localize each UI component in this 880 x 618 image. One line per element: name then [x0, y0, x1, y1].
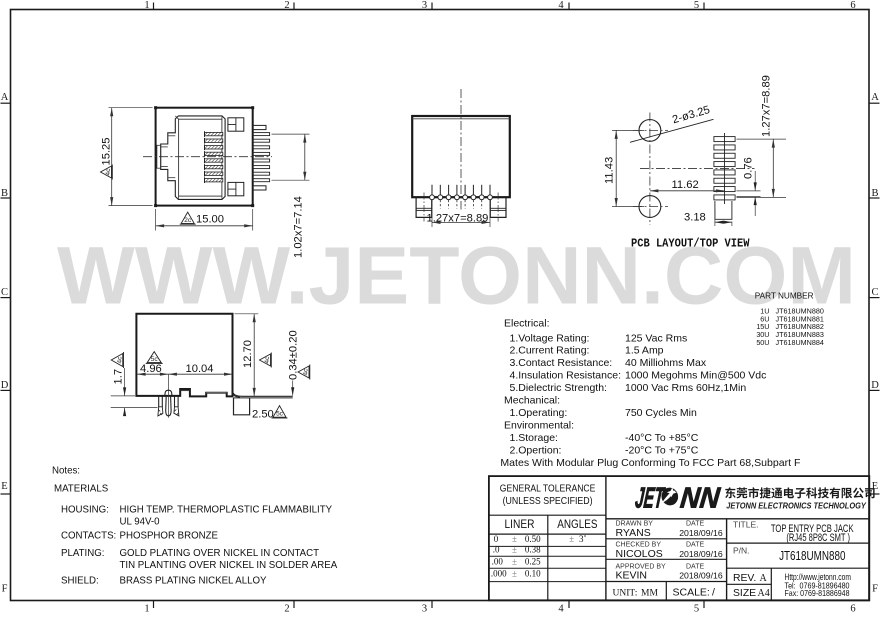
svg-text:SIZE: SIZE	[733, 588, 756, 599]
svg-text:.00: .00	[492, 557, 504, 567]
svg-text:12.70: 12.70	[242, 340, 254, 368]
svg-text:750 Cycles Min: 750 Cycles Min	[625, 407, 697, 419]
svg-text:1000 Megohms Min@500 Vdc: 1000 Megohms Min@500 Vdc	[625, 370, 766, 382]
svg-text:ANGLES: ANGLES	[557, 518, 598, 531]
svg-text:1.5 Amp: 1.5 Amp	[625, 345, 664, 357]
svg-text:0.38: 0.38	[525, 544, 541, 554]
svg-text:HOUSING:: HOUSING:	[61, 505, 109, 516]
svg-text:2018/09/16: 2018/09/16	[679, 549, 723, 559]
svg-text:1.Voltage Rating:: 1.Voltage Rating:	[510, 333, 590, 345]
svg-text:C: C	[871, 287, 878, 298]
svg-text:A4: A4	[758, 588, 770, 599]
svg-text:C: C	[1, 287, 8, 298]
svg-text:4: 4	[558, 0, 564, 11]
svg-text:Mates With Modular Plug Confor: Mates With Modular Plug Conforming To FC…	[500, 457, 800, 469]
svg-text:PCB LAYOUT/TOP VIEW: PCB LAYOUT/TOP VIEW	[631, 237, 750, 250]
svg-text:CONTACTS:: CONTACTS:	[61, 531, 116, 542]
svg-text:PART NUMBER: PART NUMBER	[755, 292, 814, 301]
svg-text:0.34±0.20: 0.34±0.20	[287, 330, 299, 380]
svg-text:E: E	[872, 481, 878, 492]
svg-text:6: 6	[850, 604, 855, 614]
svg-text:DATE: DATE	[686, 542, 704, 549]
svg-text:3˚: 3˚	[579, 534, 587, 544]
svg-text:1.7: 1.7	[113, 369, 125, 385]
svg-text:0.76: 0.76	[743, 157, 755, 179]
svg-text:KEVIN: KEVIN	[616, 570, 648, 582]
svg-text:6: 6	[850, 0, 855, 11]
svg-text:10.04: 10.04	[186, 363, 214, 375]
svg-text:SHIELD:: SHIELD:	[61, 576, 99, 587]
svg-text:1: 1	[144, 0, 149, 11]
svg-text:NICOLOS: NICOLOS	[616, 548, 663, 560]
svg-text:TITLE.: TITLE.	[733, 520, 759, 530]
svg-text:5.Dielectric Strength:: 5.Dielectric Strength:	[510, 382, 607, 394]
svg-text:D: D	[1, 380, 9, 391]
svg-text:DATE: DATE	[686, 564, 704, 571]
svg-text:F: F	[2, 584, 8, 595]
svg-text:Mechanical:: Mechanical:	[504, 395, 560, 407]
svg-text:1.Operating:: 1.Operating:	[510, 407, 568, 419]
svg-text:40 Milliohms Max: 40 Milliohms Max	[625, 357, 707, 369]
svg-text:1: 1	[144, 604, 149, 614]
svg-text:B: B	[871, 188, 878, 199]
svg-text:1.27x7=8.89: 1.27x7=8.89	[427, 213, 489, 225]
svg-text:TIN PLANTING OVER NICKEL IN SO: TIN PLANTING OVER NICKEL IN SOLDER AREA	[120, 560, 338, 571]
svg-text:2.Opertion:: 2.Opertion:	[510, 445, 562, 457]
svg-text:5c: 5c	[151, 356, 159, 363]
svg-text:±: ±	[512, 569, 517, 579]
svg-text:GENERAL TOLERANCE: GENERAL TOLERANCE	[500, 483, 596, 494]
svg-text:3.Contact Resistance:: 3.Contact Resistance:	[510, 357, 613, 369]
svg-text:UL 94V-0: UL 94V-0	[120, 517, 161, 528]
svg-text:GOLD PLATING OVER NICKEL IN CO: GOLD PLATING OVER NICKEL IN CONTACT	[120, 548, 320, 559]
svg-text:1000 Vac Rms 60Hz,1Min: 1000 Vac Rms 60Hz,1Min	[625, 382, 746, 394]
svg-text:F: F	[872, 584, 878, 595]
svg-text:2: 2	[284, 0, 289, 11]
svg-text:-20°C To +75°C: -20°C To +75°C	[625, 445, 699, 457]
svg-text:0.10: 0.10	[525, 569, 541, 579]
svg-text:SCALE:: SCALE:	[673, 587, 710, 599]
svg-text:2018/09/16: 2018/09/16	[679, 571, 723, 581]
svg-text:±: ±	[512, 544, 517, 554]
svg-text:MM: MM	[641, 589, 658, 599]
svg-text:UNIT:: UNIT:	[613, 589, 638, 599]
svg-text:HIGH TEMP. THERMOPLASTIC FLAMM: HIGH TEMP. THERMOPLASTIC FLAMMABILITY	[120, 505, 333, 516]
svg-text:±: ±	[512, 557, 517, 567]
svg-text:4.96: 4.96	[140, 363, 162, 375]
svg-text:A: A	[760, 573, 768, 584]
svg-text:P/N.: P/N.	[733, 545, 750, 555]
svg-text:PLATING:: PLATING:	[61, 548, 104, 559]
svg-text:11.43: 11.43	[604, 157, 616, 184]
svg-text:/: /	[712, 587, 715, 599]
svg-text:A: A	[1, 92, 9, 103]
svg-text:0: 0	[494, 534, 499, 544]
svg-text:15.25: 15.25	[101, 138, 113, 166]
svg-text:D: D	[871, 380, 879, 391]
svg-text:4.Insulation Resistance:: 4.Insulation Resistance:	[510, 370, 621, 382]
svg-text:.000: .000	[491, 569, 507, 579]
svg-text:3: 3	[422, 604, 427, 614]
svg-text:11.62: 11.62	[672, 179, 699, 191]
svg-text:5c: 5c	[276, 411, 284, 418]
svg-text:1.27x7=8.89: 1.27x7=8.89	[761, 75, 773, 137]
svg-text:4c: 4c	[105, 168, 112, 176]
svg-text:2: 2	[284, 604, 289, 614]
svg-text:3.18: 3.18	[684, 212, 706, 224]
svg-text:0.50: 0.50	[525, 534, 541, 544]
svg-text:1.Storage:: 1.Storage:	[510, 432, 558, 444]
svg-text:-40°C To +85°C: -40°C To +85°C	[625, 432, 699, 444]
svg-text:125 Vac Rms: 125 Vac Rms	[625, 333, 687, 345]
svg-text:4c: 4c	[264, 356, 271, 364]
svg-text:±: ±	[512, 534, 517, 544]
svg-text:Electrical:: Electrical:	[504, 318, 550, 330]
svg-text:.0: .0	[493, 544, 500, 554]
svg-text:Notes:: Notes:	[52, 465, 80, 476]
svg-text:2.Current Rating:: 2.Current Rating:	[510, 345, 590, 357]
svg-text:DATE: DATE	[686, 521, 704, 528]
svg-text:4: 4	[558, 604, 564, 614]
svg-text:50U: 50U	[756, 338, 769, 347]
svg-text:1.02x7=7.14: 1.02x7=7.14	[292, 196, 304, 258]
svg-text:(UNLESS SPECIFIED): (UNLESS SPECIFIED)	[503, 496, 593, 507]
svg-text:JT618UMN880: JT618UMN880	[779, 548, 845, 563]
svg-text:5: 5	[694, 604, 699, 614]
svg-text:Fax: 0769-81886948: Fax: 0769-81886948	[785, 588, 850, 598]
svg-text:(RJ45 8P8C SMT ): (RJ45 8P8C SMT )	[786, 532, 850, 544]
svg-text:JETONN ELECTRONICS TECHNOLOGY: JETONN ELECTRONICS TECHNOLOGY	[726, 501, 867, 510]
svg-text:MATERIALS: MATERIALS	[54, 484, 109, 495]
svg-text:±: ±	[569, 534, 574, 544]
svg-text:2018/09/16: 2018/09/16	[679, 528, 723, 538]
svg-text:15.00: 15.00	[196, 214, 224, 226]
svg-text:A: A	[871, 92, 879, 103]
svg-text:2c: 2c	[184, 217, 192, 224]
svg-text:0.25: 0.25	[525, 557, 541, 567]
svg-text:B: B	[1, 188, 8, 199]
svg-text:2.50: 2.50	[252, 409, 274, 421]
svg-text:JT618UMN884: JT618UMN884	[776, 338, 824, 347]
svg-text:Environmental:: Environmental:	[504, 420, 574, 432]
svg-text:E: E	[1, 481, 7, 492]
svg-text:4c: 4c	[303, 368, 310, 376]
svg-text:BRASS PLATING NICKEL ALLOY: BRASS PLATING NICKEL ALLOY	[120, 576, 268, 587]
svg-text:LINER: LINER	[505, 518, 535, 531]
svg-text:PHOSPHOR BRONZE: PHOSPHOR BRONZE	[120, 531, 219, 542]
svg-text:RYANS: RYANS	[616, 527, 651, 539]
svg-text:3: 3	[422, 0, 427, 11]
svg-text:REV.: REV.	[733, 573, 756, 584]
svg-text:5: 5	[694, 0, 699, 11]
svg-text:NN: NN	[679, 483, 722, 515]
svg-text:4c: 4c	[116, 356, 123, 364]
